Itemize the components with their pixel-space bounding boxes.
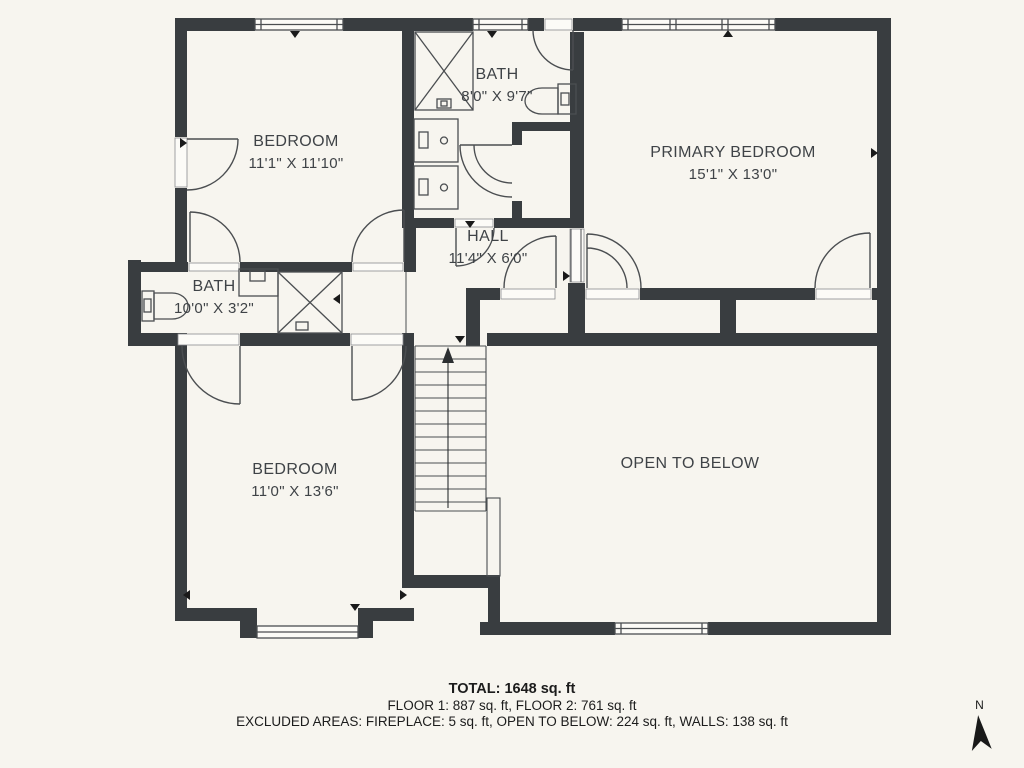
summary-total: TOTAL: 1648 sq. ft <box>0 681 1024 698</box>
stairs <box>415 346 500 576</box>
floorplan-drawing <box>0 0 1024 768</box>
room-label-bedroom-bottom-left: BEDROOM 11'0" X 13'6" <box>251 461 339 500</box>
room-label-hall: HALL 11'4" X 6'0" <box>449 228 528 267</box>
wall-markers <box>180 30 878 611</box>
door-corridor-top <box>352 210 404 262</box>
door-bedroom-bl-left <box>182 346 240 404</box>
door-bath-top-exterior <box>533 30 573 70</box>
room-label-primary-bedroom: PRIMARY BEDROOM 15'1" X 13'0" <box>650 144 815 183</box>
floorplan-page: BEDROOM 11'1" X 11'10" BATH 8'0" X 9'7" … <box>0 0 1024 768</box>
compass-north-label: N <box>956 698 1004 712</box>
walls <box>128 18 891 638</box>
room-label-bedroom-top-left: BEDROOM 11'1" X 11'10" <box>248 133 343 172</box>
door-primary-entry <box>815 233 870 288</box>
room-label-bath-left: BATH 10'0" X 3'2" <box>174 278 254 317</box>
area-summary: TOTAL: 1648 sq. ft FLOOR 1: 887 sq. ft, … <box>0 681 1024 729</box>
room-label-open-to-below: OPEN TO BELOW <box>621 455 760 473</box>
summary-excluded: EXCLUDED AREAS: FIREPLACE: 5 sq. ft, OPE… <box>0 714 1024 730</box>
shower-left-bath <box>278 272 342 333</box>
door-primary-closet-bifold <box>587 234 641 288</box>
room-label-bath-top: BATH 8'0" X 9'7" <box>461 66 532 105</box>
vanity-top-bath <box>414 119 458 209</box>
compass: N <box>956 698 1004 757</box>
windows <box>255 19 775 638</box>
summary-floors: FLOOR 1: 887 sq. ft, FLOOR 2: 761 sq. ft <box>0 698 1024 714</box>
door-linen-closet-bifold <box>460 145 512 197</box>
stairs-direction-arrow <box>442 347 454 508</box>
north-arrow-icon <box>964 713 996 754</box>
door-bedroom-tl <box>187 139 238 190</box>
door-bath-left-top <box>190 212 240 262</box>
stair-landing-rail <box>487 498 500 576</box>
door-bedroom-bl-right <box>352 346 406 400</box>
